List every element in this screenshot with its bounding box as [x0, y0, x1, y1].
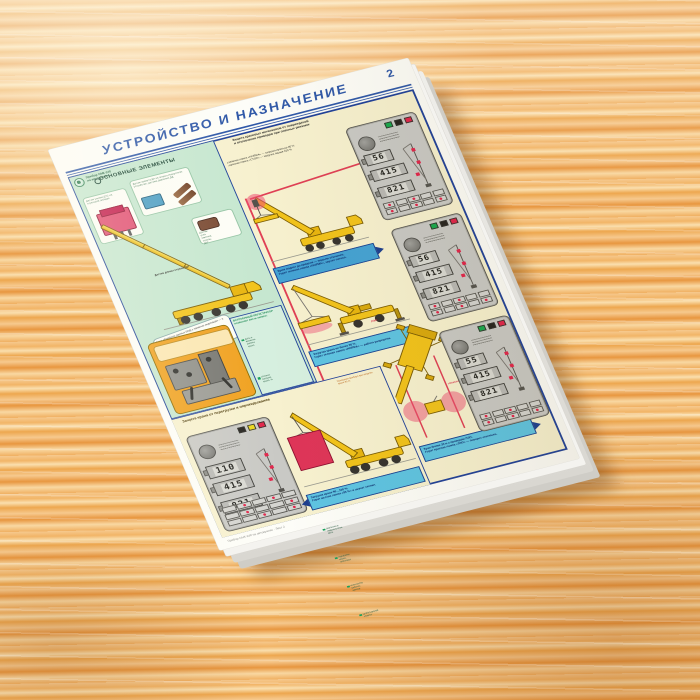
panel-button	[398, 204, 411, 212]
panel-button	[468, 299, 481, 307]
indicator-row	[384, 116, 413, 128]
page-number: 2	[384, 63, 409, 80]
panel-button	[531, 406, 544, 414]
poster-face: 2 УСТРОЙСТВО И НАЗНАЧЕНИЕ Прибор ОНК-140…	[48, 58, 580, 550]
indicator-light	[394, 119, 404, 126]
display-readout: 415	[415, 264, 454, 284]
display-readout: 415	[463, 366, 502, 386]
vent-grille-icon	[218, 440, 240, 451]
panel-button	[410, 201, 423, 209]
panel-button	[482, 418, 495, 426]
indicator-light	[237, 426, 247, 433]
sensor-box-angle: Датчик угла наклона стрелы ДУГ	[190, 208, 243, 245]
display-readout: 55	[456, 352, 488, 370]
display-readout: 415	[212, 474, 255, 496]
vent-grille-icon	[423, 233, 445, 244]
panel-button	[506, 412, 519, 420]
indicator-row	[477, 320, 506, 332]
speaker-icon	[356, 135, 378, 153]
indicator-light	[257, 421, 267, 428]
panel-button	[480, 296, 493, 304]
indicator-row	[429, 217, 458, 229]
panel-button	[385, 207, 398, 215]
wooden-desk-background: 2 УСТРОЙСТВО И НАЗНАЧЕНИЕ Прибор ОНК-140…	[0, 0, 700, 700]
vent-grille-icon	[378, 132, 400, 143]
indicator-light	[384, 121, 394, 128]
poster-stack: 2 УСТРОЙСТВО И НАЗНАЧЕНИЕ Прибор ОНК-140…	[48, 58, 580, 550]
panel-button	[422, 198, 435, 206]
panel-button	[494, 415, 507, 423]
speaker-icon	[401, 236, 423, 254]
azimuth-sensor-illustration	[141, 193, 166, 210]
display-readout: 821	[470, 383, 509, 403]
panel-button	[443, 305, 456, 313]
display-readout: 56	[363, 149, 395, 167]
indicator-light	[247, 424, 257, 431]
button-grid	[222, 490, 303, 527]
indicator-light	[497, 320, 507, 327]
speaker-icon	[449, 338, 471, 356]
indicator-light	[439, 220, 449, 227]
brand-logo-icon	[73, 177, 87, 188]
speaker-icon	[196, 443, 218, 461]
panel-button	[519, 409, 532, 417]
indicator-light	[477, 325, 487, 332]
panel-button	[434, 195, 447, 203]
vent-grille-icon	[471, 335, 493, 346]
indicator-row	[237, 421, 266, 433]
indicator-light	[404, 116, 414, 123]
display-readout: 415	[370, 162, 409, 182]
indicator-light	[487, 322, 497, 329]
display-readout: 56	[408, 250, 440, 268]
panel-button	[455, 302, 468, 310]
indicator-light	[449, 217, 459, 224]
indicator-light	[429, 222, 439, 229]
panel-button	[431, 308, 444, 316]
